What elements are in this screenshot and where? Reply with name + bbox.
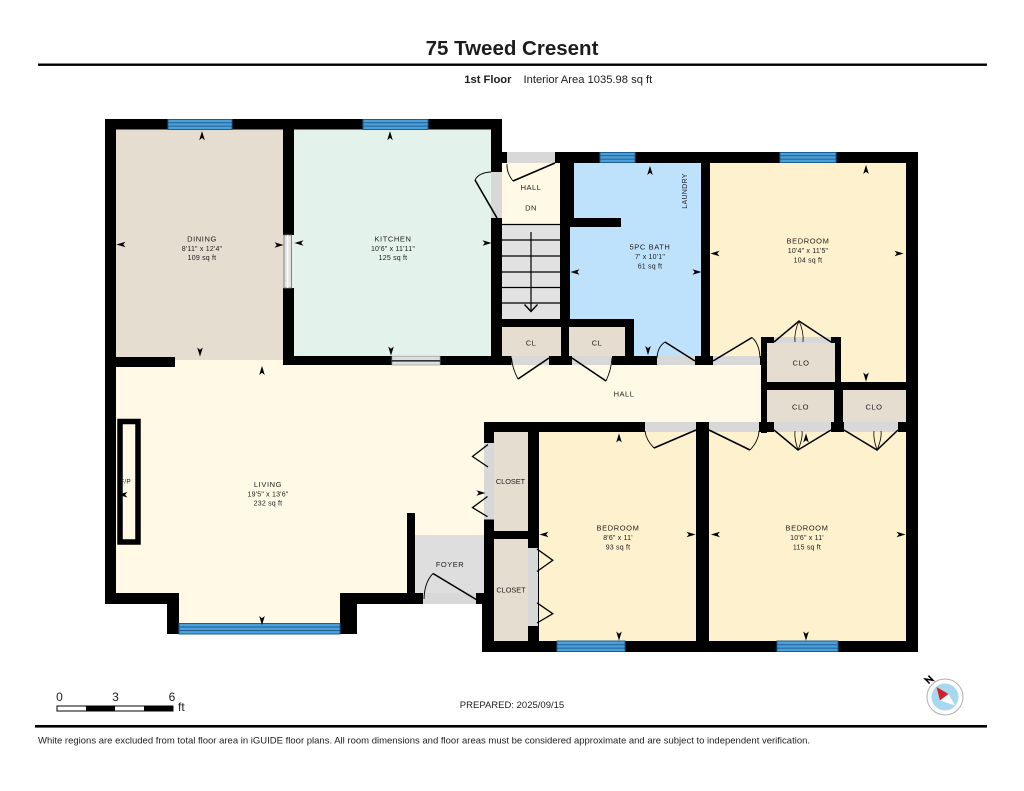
svg-text:CL: CL: [592, 339, 603, 348]
svg-text:CLO: CLO: [866, 402, 883, 411]
svg-text:BEDROOM: BEDROOM: [787, 237, 830, 246]
svg-text:HALL: HALL: [614, 390, 635, 399]
svg-text:CLO: CLO: [792, 402, 809, 411]
svg-text:BEDROOM: BEDROOM: [597, 524, 640, 533]
svg-text:115 sq ft: 115 sq ft: [793, 545, 821, 552]
svg-text:19'5" x 13'6": 19'5" x 13'6": [248, 492, 289, 499]
svg-text:8'6" x 11': 8'6" x 11': [603, 535, 633, 542]
svg-text:ft: ft: [178, 700, 185, 714]
svg-text:1st Floor: 1st Floor: [464, 74, 512, 86]
svg-text:93 sq ft: 93 sq ft: [606, 545, 631, 552]
svg-text:10'6" x 11': 10'6" x 11': [790, 535, 824, 542]
svg-text:0: 0: [56, 690, 63, 704]
svg-text:FOYER: FOYER: [436, 560, 464, 569]
svg-text:BEDROOM: BEDROOM: [786, 524, 829, 533]
svg-text:CLO: CLO: [793, 358, 810, 367]
svg-text:CLOSET: CLOSET: [496, 477, 526, 486]
svg-text:8'11" x 12'4": 8'11" x 12'4": [182, 246, 223, 253]
svg-text:DINING: DINING: [187, 235, 217, 244]
svg-text:HALL: HALL: [521, 183, 542, 192]
svg-text:75 Tweed Cresent: 75 Tweed Cresent: [426, 37, 599, 60]
svg-text:232 sq ft: 232 sq ft: [254, 501, 283, 508]
svg-text:125 sq ft: 125 sq ft: [379, 255, 408, 262]
svg-text:5PC BATH: 5PC BATH: [630, 243, 671, 252]
svg-text:109 sq ft: 109 sq ft: [188, 255, 217, 262]
svg-text:CL: CL: [526, 339, 537, 348]
svg-text:PREPARED: 2025/09/15: PREPARED: 2025/09/15: [460, 700, 564, 711]
svg-text:DN: DN: [525, 204, 537, 213]
svg-text:LAUNDRY: LAUNDRY: [682, 173, 689, 208]
svg-text:White regions are excluded fro: White regions are excluded from total fl…: [38, 736, 810, 747]
svg-text:10'4" x 11'5": 10'4" x 11'5": [788, 248, 829, 255]
svg-text:KITCHEN: KITCHEN: [374, 235, 411, 244]
svg-text:Interior Area 1035.98 sq ft: Interior Area 1035.98 sq ft: [524, 74, 654, 86]
svg-text:10'6" x 11'11": 10'6" x 11'11": [371, 246, 415, 253]
svg-text:7' x 10'1": 7' x 10'1": [635, 254, 665, 261]
svg-text:CLOSET: CLOSET: [496, 586, 526, 595]
svg-text:61 sq ft: 61 sq ft: [638, 264, 663, 271]
svg-text:6: 6: [169, 690, 176, 704]
svg-text:F/P: F/P: [120, 479, 131, 486]
svg-text:LIVING: LIVING: [254, 480, 282, 489]
svg-text:3: 3: [112, 690, 119, 704]
svg-text:104 sq ft: 104 sq ft: [794, 258, 823, 265]
